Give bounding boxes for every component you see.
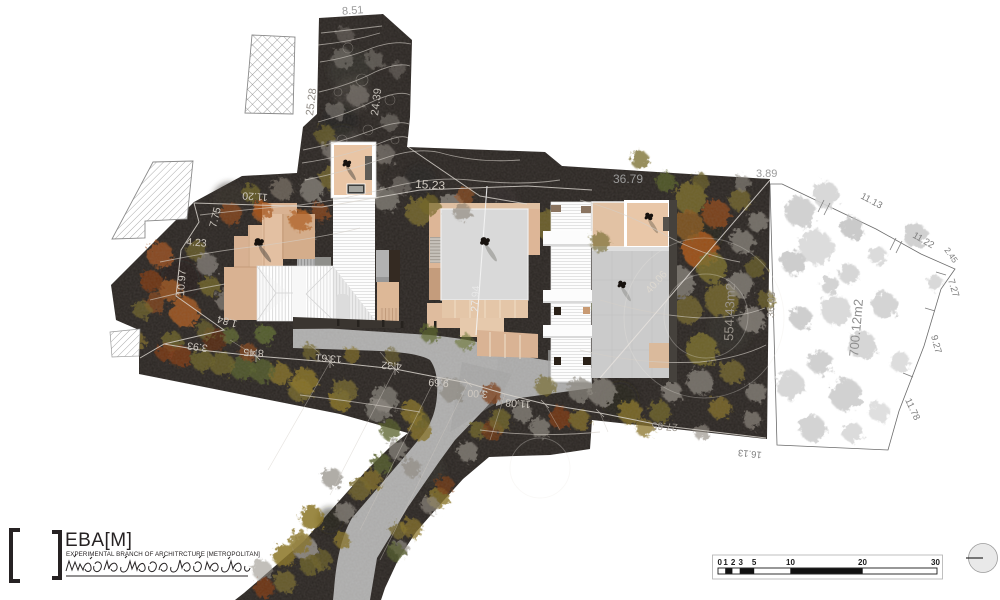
svg-text:3.00: 3.00 — [467, 387, 488, 400]
svg-text:8.51: 8.51 — [342, 4, 364, 17]
svg-text:13.61: 13.61 — [315, 351, 342, 365]
svg-text:9.69: 9.69 — [428, 376, 449, 389]
svg-text:0: 0 — [718, 558, 723, 567]
svg-text:20: 20 — [858, 558, 867, 567]
svg-text:36.03: 36.03 — [765, 291, 778, 318]
svg-text:30: 30 — [931, 558, 940, 567]
svg-text:10: 10 — [786, 558, 795, 567]
svg-text:554.43m2: 554.43m2 — [721, 283, 738, 341]
svg-text:11.08: 11.08 — [505, 396, 531, 410]
svg-text:1: 1 — [723, 558, 728, 567]
svg-text:8.45: 8.45 — [243, 346, 264, 359]
svg-text:36.79: 36.79 — [613, 172, 643, 186]
svg-text:EBA[M]: EBA[M] — [65, 530, 132, 551]
svg-text:3: 3 — [739, 558, 744, 567]
svg-text:5: 5 — [752, 558, 757, 567]
svg-text:27.65: 27.65 — [651, 419, 678, 433]
svg-text:2: 2 — [731, 558, 736, 567]
svg-text:EXPERIMENTAL BRANCH OF ARCHITR: EXPERIMENTAL BRANCH OF ARCHITRCTURE [MET… — [66, 551, 260, 558]
svg-text:10.97: 10.97 — [175, 269, 189, 296]
svg-text:15.23: 15.23 — [415, 177, 446, 193]
svg-text:3.89: 3.89 — [756, 168, 777, 180]
svg-text:11.20: 11.20 — [242, 189, 268, 203]
svg-text:4.23: 4.23 — [186, 236, 208, 250]
svg-text:27.94: 27.94 — [469, 285, 482, 312]
